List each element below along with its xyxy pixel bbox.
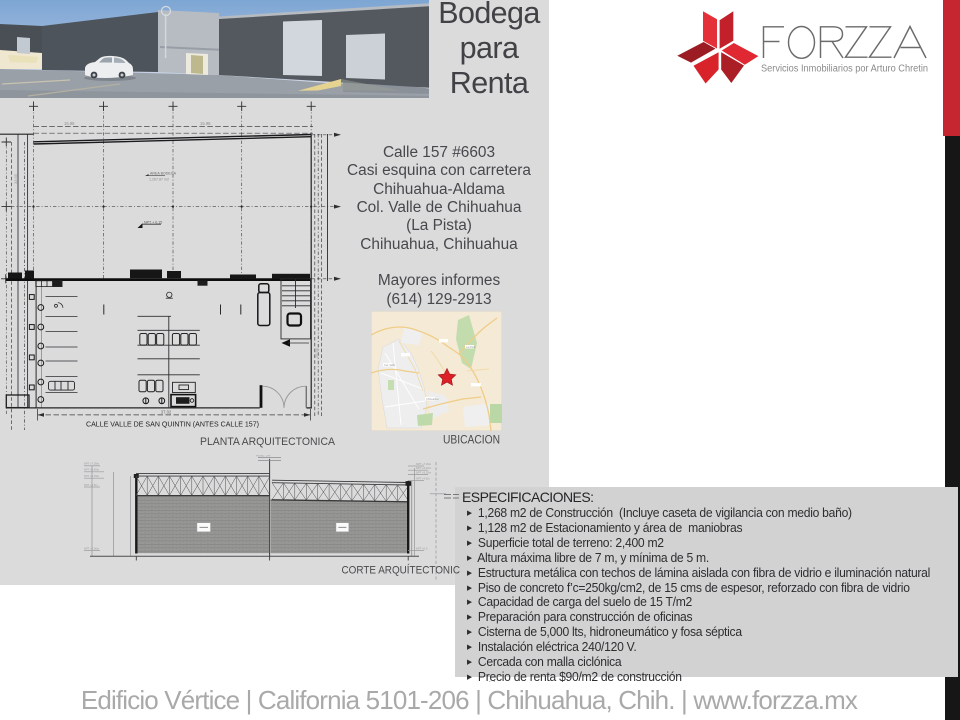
svg-text:NPT +0.00m: NPT +0.00m [84, 546, 100, 550]
svg-text:15.98: 15.98 [200, 121, 211, 126]
svg-text:NPT +0.0: NPT +0.0 [416, 546, 428, 550]
svg-text:NPT +4.5m: NPT +4.5m [84, 483, 98, 487]
svg-text:NPT +6.40m: NPT +6.40m [84, 468, 100, 472]
svg-text:Servicios Inmobiliarios por Ar: Servicios Inmobiliarios por Arturo Chret… [761, 64, 928, 75]
svg-text:La Pista: La Pista [466, 345, 476, 349]
svg-text:NPT +7.03m: NPT +7.03m [416, 462, 432, 466]
svg-text:37.02: 37.02 [161, 410, 172, 415]
svg-text:Col. Valle: Col. Valle [384, 363, 395, 367]
svg-text:29.95: 29.95 [314, 347, 319, 358]
svg-text:NPT +5.03m: NPT +5.03m [416, 470, 432, 474]
svg-text:NPT +6.40m: NPT +6.40m [416, 466, 432, 470]
svg-text:AREA BODEGA: AREA BODEGA [150, 172, 177, 176]
svg-text:PEND. 2%: PEND. 2% [256, 455, 271, 457]
svg-text:NPT + 0.15: NPT + 0.15 [144, 220, 162, 224]
svg-text:UBICACION: UBICACION [443, 433, 500, 447]
svg-text:NPT +5.03m: NPT +5.03m [84, 474, 100, 478]
svg-text:PLANTA ARQUITECTONICA: PLANTA ARQUITECTONICA [200, 436, 335, 448]
svg-text:15.98: 15.98 [64, 121, 75, 126]
svg-text:CORTE ARQUÍTECTONIC: CORTE ARQUÍTECTONIC [342, 564, 461, 577]
svg-text:CALLE VALLE DE SAN QUINTIN (AN: CALLE VALLE DE SAN QUINTIN (ANTES CALLE … [86, 419, 259, 428]
svg-text:Chihuahua: Chihuahua [426, 397, 439, 401]
svg-text:NPT +4.5m: NPT +4.5m [416, 476, 430, 480]
svg-text:33.95: 33.95 [13, 173, 18, 184]
svg-text:NPT +7.03m: NPT +7.03m [84, 462, 100, 466]
svg-text:1,267.87 m2: 1,267.87 m2 [149, 177, 169, 181]
